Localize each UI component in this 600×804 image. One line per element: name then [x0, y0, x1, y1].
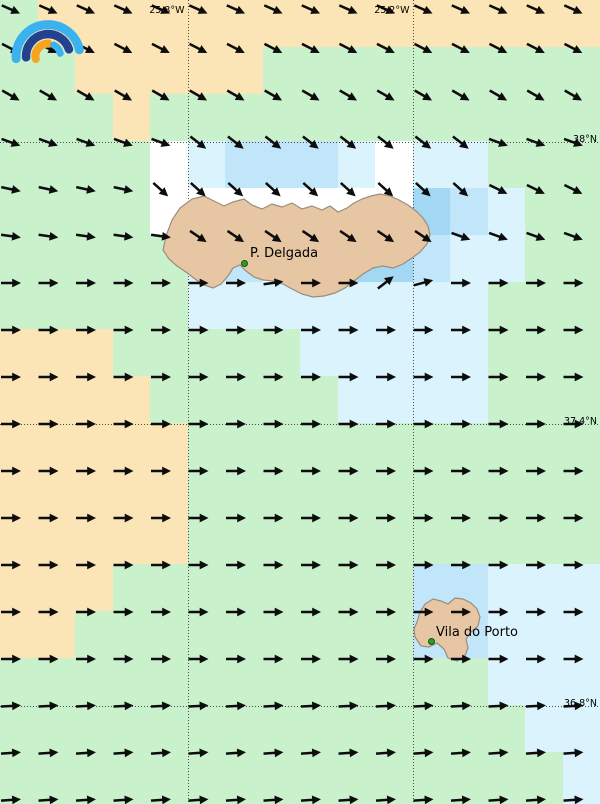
- wind-speed-cell: [263, 611, 301, 658]
- wind-speed-cell: [413, 423, 451, 470]
- wind-speed-cell: [450, 329, 488, 376]
- wind-speed-cell: [150, 752, 188, 799]
- wind-speed-cell: [150, 611, 188, 658]
- wind-speed-cell: [263, 705, 301, 752]
- wind-speed-cell: [300, 376, 338, 423]
- wind-speed-cell: [300, 517, 338, 564]
- wind-speed-cell: [75, 705, 113, 752]
- wind-speed-cell: [563, 423, 600, 470]
- wind-speed-cell: [375, 94, 413, 141]
- wind-speed-cell: [150, 470, 188, 517]
- wind-speed-cell: [525, 752, 563, 799]
- wind-speed-cell: [150, 376, 188, 423]
- wind-speed-cell: [263, 564, 301, 611]
- wind-speed-cell: [75, 799, 113, 804]
- wind-speed-cell: [113, 329, 151, 376]
- wind-speed-cell: [375, 188, 413, 235]
- wind-speed-cell: [38, 705, 76, 752]
- city-label: P. Delgada: [250, 246, 318, 261]
- wind-speed-cell: [113, 47, 151, 94]
- wind-speed-cell: [488, 517, 526, 564]
- wind-speed-cell: [225, 329, 263, 376]
- wind-speed-cell: [150, 47, 188, 94]
- wind-speed-cell: [338, 517, 376, 564]
- wind-speed-cell: [525, 141, 563, 188]
- wind-speed-cell: [188, 423, 226, 470]
- wind-speed-cell: [300, 0, 338, 47]
- wind-speed-cell: [563, 0, 600, 47]
- wind-speed-cell: [338, 141, 376, 188]
- wind-speed-cell: [113, 94, 151, 141]
- wind-speed-cell: [488, 141, 526, 188]
- wind-speed-cell: [563, 235, 600, 282]
- wind-speed-cell: [150, 188, 188, 235]
- wind-speed-cell: [525, 470, 563, 517]
- wind-speed-cell: [488, 470, 526, 517]
- wind-speed-cell: [338, 376, 376, 423]
- wind-speed-cell: [300, 470, 338, 517]
- wind-speed-cell: [188, 799, 226, 804]
- wind-speed-cell: [413, 0, 451, 47]
- wind-speed-cell: [413, 47, 451, 94]
- wind-speed-cell: [225, 141, 263, 188]
- wind-speed-cell: [263, 376, 301, 423]
- wind-speed-cell: [450, 188, 488, 235]
- wind-speed-cell: [263, 517, 301, 564]
- wind-speed-cell: [375, 141, 413, 188]
- wind-speed-cell: [525, 235, 563, 282]
- wind-speed-cell: [75, 141, 113, 188]
- wind-speed-cell: [188, 564, 226, 611]
- wind-speed-cell: [38, 423, 76, 470]
- wind-speed-cell: [75, 282, 113, 329]
- wind-speed-cell: [38, 517, 76, 564]
- wind-speed-cell: [450, 799, 488, 804]
- wind-speed-cell: [263, 0, 301, 47]
- wind-speed-cell: [113, 235, 151, 282]
- wind-speed-cell: [525, 376, 563, 423]
- wind-speed-cell: [188, 282, 226, 329]
- wind-speed-cell: [450, 94, 488, 141]
- wind-speed-cell: [188, 0, 226, 47]
- wind-speed-cell: [300, 141, 338, 188]
- wind-speed-cell: [525, 564, 563, 611]
- wind-speed-cell: [188, 517, 226, 564]
- wind-speed-cell: [450, 0, 488, 47]
- wind-speed-cell: [263, 470, 301, 517]
- wind-speed-cell: [488, 282, 526, 329]
- wind-speed-cell: [375, 376, 413, 423]
- wind-speed-cell: [38, 188, 76, 235]
- wind-speed-cell: [188, 470, 226, 517]
- wind-speed-cell: [225, 188, 263, 235]
- wind-speed-cell: [225, 376, 263, 423]
- wind-speed-cell: [525, 799, 563, 804]
- wind-speed-cell: [338, 799, 376, 804]
- wind-speed-cell: [488, 564, 526, 611]
- wind-speed-cell: [188, 705, 226, 752]
- wind-speed-cell: [263, 423, 301, 470]
- wind-speed-cell: [0, 423, 38, 470]
- wind-speed-cell: [150, 282, 188, 329]
- wind-speed-cell: [563, 47, 600, 94]
- wind-speed-cell: [0, 376, 38, 423]
- wind-speed-cell: [413, 799, 451, 804]
- wind-speed-cell: [75, 329, 113, 376]
- wind-speed-cell: [300, 799, 338, 804]
- wind-forecast-map[interactable]: 25.8°W25.2°W38°N37.4°N36.8°N P. DelgadaV…: [0, 0, 600, 804]
- wind-speed-cell: [413, 705, 451, 752]
- wind-speed-cell: [263, 752, 301, 799]
- wind-speed-cell: [338, 611, 376, 658]
- wind-speed-cell: [75, 423, 113, 470]
- wind-speed-cell: [488, 47, 526, 94]
- wind-speed-cell: [338, 282, 376, 329]
- wind-speed-cell: [413, 188, 451, 235]
- wind-speed-cell: [450, 141, 488, 188]
- wind-speed-cell: [375, 564, 413, 611]
- wind-speed-cell: [0, 517, 38, 564]
- wind-speed-cell: [0, 282, 38, 329]
- wind-speed-cell: [300, 658, 338, 705]
- wind-speed-cell: [563, 282, 600, 329]
- wind-speed-cell: [38, 282, 76, 329]
- wind-speed-cell: [188, 658, 226, 705]
- wind-speed-cell: [188, 188, 226, 235]
- wind-speed-cell: [75, 235, 113, 282]
- wind-speed-cell: [488, 188, 526, 235]
- wind-speed-cell: [375, 799, 413, 804]
- wind-speed-cell: [300, 611, 338, 658]
- wind-speed-cell: [300, 752, 338, 799]
- wind-speed-cell: [113, 470, 151, 517]
- wind-speed-cell: [525, 188, 563, 235]
- wind-speed-cell: [38, 752, 76, 799]
- latitude-gridline: [0, 142, 600, 143]
- wind-speed-cell: [263, 658, 301, 705]
- wind-speed-cell: [75, 94, 113, 141]
- wind-speed-cell: [0, 799, 38, 804]
- wind-speed-cell: [150, 423, 188, 470]
- wind-speed-cell: [338, 94, 376, 141]
- wind-speed-cell: [188, 611, 226, 658]
- wind-speed-cell: [525, 658, 563, 705]
- wind-speed-cell: [338, 235, 376, 282]
- wind-speed-cell: [38, 470, 76, 517]
- wind-speed-cell: [263, 329, 301, 376]
- wind-speed-cell: [225, 423, 263, 470]
- wind-speed-cell: [450, 282, 488, 329]
- wind-speed-cell: [338, 564, 376, 611]
- wind-speed-cell: [225, 282, 263, 329]
- wind-speed-cell: [525, 423, 563, 470]
- wind-speed-cell: [300, 47, 338, 94]
- wind-speed-cell: [450, 376, 488, 423]
- wind-speed-cell: [263, 141, 301, 188]
- wind-speed-cell: [38, 611, 76, 658]
- longitude-label: 25.8°W: [149, 5, 184, 16]
- longitude-gridline: [188, 0, 189, 804]
- wind-speed-cell: [563, 611, 600, 658]
- wind-speed-cell: [0, 564, 38, 611]
- wind-speed-cell: [413, 564, 451, 611]
- wind-speed-cell: [338, 658, 376, 705]
- wind-speed-cell: [525, 47, 563, 94]
- wind-speed-cell: [338, 329, 376, 376]
- wind-speed-cell: [413, 329, 451, 376]
- wind-speed-cell: [225, 470, 263, 517]
- wind-speed-cell: [488, 376, 526, 423]
- wind-speed-cell: [113, 141, 151, 188]
- wind-speed-cell: [525, 611, 563, 658]
- wind-speed-cell: [113, 564, 151, 611]
- wind-speed-cell: [150, 141, 188, 188]
- wind-speed-cell: [413, 658, 451, 705]
- wind-speed-cell: [113, 611, 151, 658]
- wind-speed-cell: [38, 141, 76, 188]
- wind-speed-cell: [488, 0, 526, 47]
- wind-speed-cell: [450, 564, 488, 611]
- wind-speed-cell: [450, 47, 488, 94]
- wind-speed-cell: [75, 564, 113, 611]
- wind-speed-cell: [488, 423, 526, 470]
- wind-speed-cell: [113, 376, 151, 423]
- wind-speed-cell: [150, 799, 188, 804]
- wind-speed-cell: [188, 47, 226, 94]
- wind-speed-cell: [413, 282, 451, 329]
- wind-speed-cell: [75, 470, 113, 517]
- wind-speed-cell: [300, 564, 338, 611]
- wind-speed-cell: [188, 141, 226, 188]
- wind-speed-cell: [225, 0, 263, 47]
- wind-speed-cell: [225, 47, 263, 94]
- wind-speed-cell: [150, 235, 188, 282]
- wind-speed-cell: [263, 47, 301, 94]
- wind-speed-cell: [375, 329, 413, 376]
- latitude-gridline: [0, 424, 600, 425]
- wind-speed-cell: [525, 282, 563, 329]
- wind-speed-cell: [38, 564, 76, 611]
- wind-speed-cell: [300, 94, 338, 141]
- wind-speed-cell: [563, 470, 600, 517]
- wind-speed-cell: [375, 705, 413, 752]
- wind-speed-cell: [75, 658, 113, 705]
- wind-speed-cell: [300, 423, 338, 470]
- city-dot: [428, 638, 435, 645]
- wind-speed-cell: [563, 188, 600, 235]
- wind-speed-cell: [488, 329, 526, 376]
- wind-speed-cell: [38, 376, 76, 423]
- wind-speed-cell: [375, 47, 413, 94]
- wind-speed-cell: [188, 94, 226, 141]
- wind-speed-cell: [563, 141, 600, 188]
- wind-speed-cell: [113, 282, 151, 329]
- wind-speed-cell: [38, 658, 76, 705]
- wind-speed-cell: [0, 235, 38, 282]
- wind-speed-cell: [188, 376, 226, 423]
- wind-speed-cell: [300, 282, 338, 329]
- wind-speed-cell: [488, 235, 526, 282]
- wind-speed-cell: [225, 705, 263, 752]
- wind-speed-cell: [488, 799, 526, 804]
- wind-speed-cell: [450, 658, 488, 705]
- wind-speed-cell: [525, 517, 563, 564]
- wind-speed-cell: [225, 611, 263, 658]
- wind-speed-cell: [488, 94, 526, 141]
- wind-speed-cell: [113, 423, 151, 470]
- wind-speed-cell: [225, 799, 263, 804]
- wind-speed-cell: [188, 235, 226, 282]
- wind-speed-cell: [488, 705, 526, 752]
- wind-speed-cell: [563, 752, 600, 799]
- wind-speed-cell: [413, 376, 451, 423]
- wind-speed-cell: [38, 799, 76, 804]
- wind-speed-cell: [338, 423, 376, 470]
- wind-speed-cell: [225, 517, 263, 564]
- wind-speed-cell: [525, 329, 563, 376]
- wind-speed-cell: [113, 705, 151, 752]
- wind-speed-cell: [263, 94, 301, 141]
- wind-speed-cell: [375, 282, 413, 329]
- wind-speed-cell: [263, 188, 301, 235]
- wind-speed-cell: [38, 235, 76, 282]
- wind-speed-cell: [450, 235, 488, 282]
- wind-speed-cell: [563, 329, 600, 376]
- wind-speed-cell: [563, 517, 600, 564]
- wind-speed-cell: [375, 611, 413, 658]
- wind-speed-cell: [0, 705, 38, 752]
- wind-speed-cell: [113, 658, 151, 705]
- wind-speed-cell: [225, 564, 263, 611]
- wind-speed-cell: [38, 329, 76, 376]
- wind-speed-cell: [150, 517, 188, 564]
- wind-speed-cell: [563, 799, 600, 804]
- wind-speed-cell: [150, 564, 188, 611]
- wind-speed-cell: [375, 235, 413, 282]
- wind-speed-cell: [300, 705, 338, 752]
- wind-speed-cell: [75, 752, 113, 799]
- wind-speed-cell: [450, 705, 488, 752]
- wind-speed-cell: [488, 752, 526, 799]
- wind-speed-cell: [338, 188, 376, 235]
- city-label: Vila do Porto: [436, 625, 518, 640]
- wind-speed-cell: [413, 517, 451, 564]
- longitude-gridline: [413, 0, 414, 804]
- wind-speed-cell: [0, 752, 38, 799]
- wind-speed-cell: [375, 423, 413, 470]
- latitude-label: 37.4°N: [564, 416, 597, 427]
- wind-speed-cell: [150, 658, 188, 705]
- wind-speed-cell: [113, 188, 151, 235]
- wind-speed-cell: [450, 470, 488, 517]
- wind-speed-cell: [0, 470, 38, 517]
- wind-speed-cell: [0, 94, 38, 141]
- rainbow-arc: [34, 43, 50, 59]
- longitude-label: 25.2°W: [374, 5, 409, 16]
- wind-speed-cell: [150, 94, 188, 141]
- wind-speed-cell: [338, 0, 376, 47]
- wind-speed-cell: [300, 329, 338, 376]
- wind-speed-cell: [375, 658, 413, 705]
- wind-speed-cell: [150, 705, 188, 752]
- wind-speed-cell: [38, 94, 76, 141]
- wind-speed-cell: [75, 517, 113, 564]
- wind-speed-cell: [113, 799, 151, 804]
- wind-speed-cell: [75, 611, 113, 658]
- latitude-label: 36.8°N: [564, 698, 597, 709]
- wind-speed-cell: [413, 94, 451, 141]
- wind-speed-cell: [263, 799, 301, 804]
- wind-speed-cell: [450, 423, 488, 470]
- wind-speed-cell: [0, 141, 38, 188]
- latitude-gridline: [0, 706, 600, 707]
- wind-speed-cell: [413, 141, 451, 188]
- wind-speed-cell: [563, 705, 600, 752]
- wind-speed-cell: [263, 282, 301, 329]
- wind-speed-cell: [525, 705, 563, 752]
- wind-speed-cell: [375, 470, 413, 517]
- wind-speed-cell: [375, 752, 413, 799]
- wind-speed-cell: [413, 752, 451, 799]
- city-dot: [241, 260, 248, 267]
- latitude-label: 38°N: [573, 134, 597, 145]
- rainbow-logo-icon: [8, 4, 90, 64]
- wind-speed-cell: [525, 0, 563, 47]
- wind-speed-cell: [113, 0, 151, 47]
- wind-speed-cell: [225, 752, 263, 799]
- wind-speed-cell: [113, 517, 151, 564]
- wind-speed-cell: [338, 752, 376, 799]
- wind-speed-cell: [0, 329, 38, 376]
- wind-speed-cell: [450, 517, 488, 564]
- wind-speed-cell: [75, 376, 113, 423]
- wind-speed-cell: [300, 188, 338, 235]
- wind-speed-cell: [150, 329, 188, 376]
- wind-speed-cell: [113, 752, 151, 799]
- wind-speed-cell: [0, 658, 38, 705]
- wind-speed-cell: [450, 752, 488, 799]
- wind-speed-cell: [188, 752, 226, 799]
- wind-speed-cell: [338, 47, 376, 94]
- wind-speed-cell: [225, 94, 263, 141]
- wind-speed-cell: [225, 658, 263, 705]
- wind-speed-cell: [188, 329, 226, 376]
- wind-speed-cell: [0, 611, 38, 658]
- wind-speed-cell: [488, 658, 526, 705]
- wind-speed-cell: [563, 564, 600, 611]
- wind-speed-cell: [0, 188, 38, 235]
- wind-speed-cell: [338, 705, 376, 752]
- wind-speed-cell: [375, 517, 413, 564]
- wind-speed-cell: [525, 94, 563, 141]
- wind-speed-cell: [75, 188, 113, 235]
- wind-speed-cell: [338, 470, 376, 517]
- rainbow-arc: [54, 44, 61, 54]
- wind-speed-cell: [413, 235, 451, 282]
- wind-speed-cell: [413, 470, 451, 517]
